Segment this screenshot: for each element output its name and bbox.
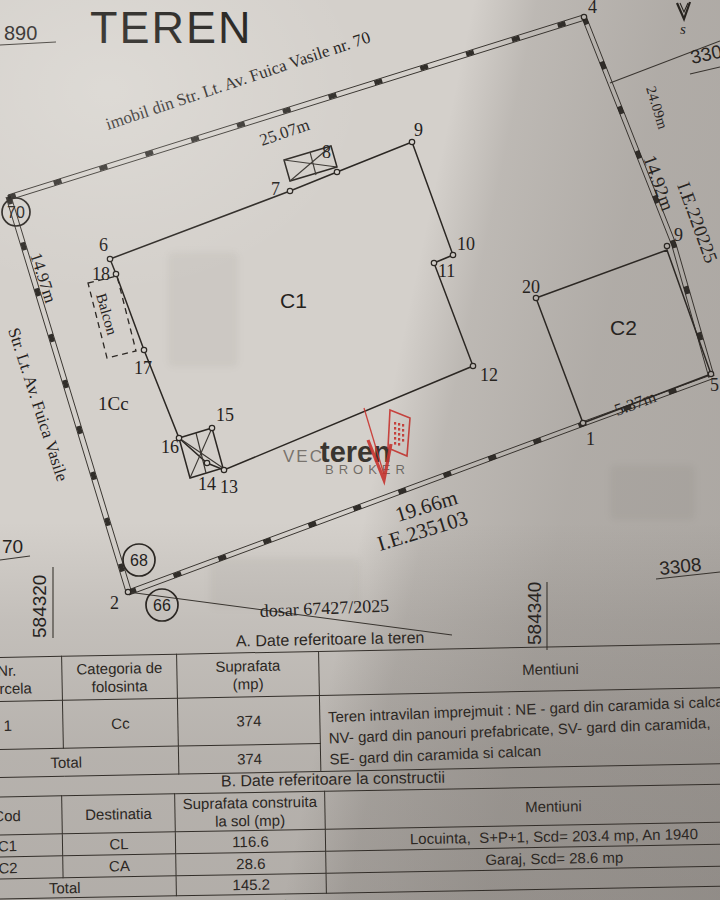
cell-nr: 1 bbox=[0, 700, 63, 750]
point-label: 17 bbox=[134, 358, 152, 378]
table-b-grid: Cod Destinatia Suprafata construita la s… bbox=[0, 783, 720, 900]
street-name-side: Str. Lt. Av. Fuica Vasile bbox=[4, 325, 72, 483]
compass-south-arrow: s bbox=[677, 2, 690, 37]
col-header-nr-parcela: Nr. parcela bbox=[0, 656, 62, 702]
col-header-categoria: Categoria de folosinta bbox=[62, 654, 178, 700]
point-label: 12 bbox=[480, 365, 498, 385]
point-label: 4 bbox=[588, 0, 597, 17]
total-suprafata: 145.2 bbox=[176, 873, 326, 896]
col-header-suprafata: Suprafata (mp) bbox=[177, 651, 320, 698]
mentiuni-text: Teren intravilan imprejmuit : NE - gard … bbox=[320, 688, 720, 769]
point-label: 6 bbox=[99, 235, 108, 255]
svg-text:66: 66 bbox=[153, 597, 171, 614]
cell-cod: C2 bbox=[0, 856, 63, 880]
street-annotation: imobil din Str. Lt. Av. Fuica Vasile nr.… bbox=[103, 28, 372, 134]
point-label: 8 bbox=[322, 142, 331, 162]
label-balcony: Balcon bbox=[93, 291, 120, 337]
steps-bottom bbox=[179, 428, 223, 478]
total-label: Total bbox=[0, 876, 176, 900]
circled-number-68: 68 bbox=[123, 544, 155, 576]
point-label: 10 bbox=[457, 234, 475, 254]
cell-suprafata: 28.6 bbox=[176, 851, 326, 876]
svg-text:s: s bbox=[680, 21, 686, 37]
point-label: 20 bbox=[522, 277, 540, 297]
col-header-mentiuni: Mentiuni bbox=[325, 783, 720, 829]
svg-text:70: 70 bbox=[7, 204, 25, 221]
cadastral-plan-drawing: 4 9 5 1 2 20 6 18 17 16 15 14 13 12 11 1… bbox=[0, 0, 720, 660]
coord-left-vertical: 584320 bbox=[29, 575, 50, 638]
watermark-logo-icon bbox=[358, 404, 418, 489]
cell-destinatia: CL bbox=[62, 832, 175, 856]
point-label: 7 bbox=[271, 179, 280, 199]
circled-number-66: 66 bbox=[146, 589, 178, 621]
cell-suprafata: 374 bbox=[177, 695, 320, 746]
dosar-number: dosar 67427/2025 bbox=[259, 595, 389, 621]
point-label: 11 bbox=[438, 261, 455, 281]
watermark-prefix: VEC bbox=[283, 447, 324, 466]
point-label: 2 bbox=[110, 593, 119, 613]
scanned-cadastral-plan-page: TEREN bbox=[0, 0, 720, 900]
label-c2: C2 bbox=[610, 316, 637, 339]
col-header-cod: Cod bbox=[0, 796, 62, 836]
grid-ticks bbox=[0, 42, 720, 650]
point-label: 9 bbox=[414, 120, 423, 140]
total-suprafata: 374 bbox=[178, 743, 321, 774]
point-label: 1 bbox=[586, 429, 595, 449]
coord-bottom-right: 3308 bbox=[658, 554, 702, 579]
svg-text:68: 68 bbox=[130, 552, 148, 569]
dim-right-upper: 24.09m bbox=[643, 84, 671, 131]
point-label: 16 bbox=[161, 437, 179, 457]
table-a-teren: A. Date referitoare la teren Nr. parcela… bbox=[0, 622, 720, 779]
ie-right: I.E.220225 bbox=[673, 179, 720, 266]
dim-left: 14.97m bbox=[26, 250, 60, 305]
dim-c2: 5.37m bbox=[612, 387, 659, 420]
table-a-grid: Nr. parcela Categoria de folosinta Supra… bbox=[0, 642, 720, 779]
point-label: 5 bbox=[710, 375, 719, 395]
point-label: 15 bbox=[216, 405, 234, 425]
point-label: 9 bbox=[674, 225, 683, 245]
point-label: 18 bbox=[92, 264, 110, 284]
cell-cod: C1 bbox=[0, 834, 63, 858]
cell-destinatia: CA bbox=[63, 854, 176, 878]
cell-mentiuni: Teren intravilan imprejmuit : NE - gard … bbox=[319, 687, 720, 772]
table-b-constructii: B. Date referitoare la constructii Cod D… bbox=[0, 763, 720, 900]
point-label: 13 bbox=[220, 477, 238, 497]
label-parcel-1cc: 1Cc bbox=[98, 393, 129, 414]
col-header-destinatia: Destinatia bbox=[62, 794, 176, 834]
label-c1: C1 bbox=[280, 289, 307, 312]
point-label: 14 bbox=[198, 474, 216, 494]
dim-right-lower: 14.92m bbox=[639, 152, 678, 213]
cell-categoria: Cc bbox=[62, 698, 178, 748]
col-header-suprafata-construita: Suprafata construita la sol (mp) bbox=[175, 791, 326, 832]
coord-top-right: 330 bbox=[688, 41, 720, 68]
coord-left-bottom: 70 bbox=[2, 536, 23, 557]
coord-top-left: 890 bbox=[4, 22, 37, 44]
circled-number-70: 70 bbox=[2, 198, 30, 226]
col-header-mentiuni: Mentiuni bbox=[319, 643, 720, 696]
cell-suprafata: 116.6 bbox=[175, 829, 325, 854]
